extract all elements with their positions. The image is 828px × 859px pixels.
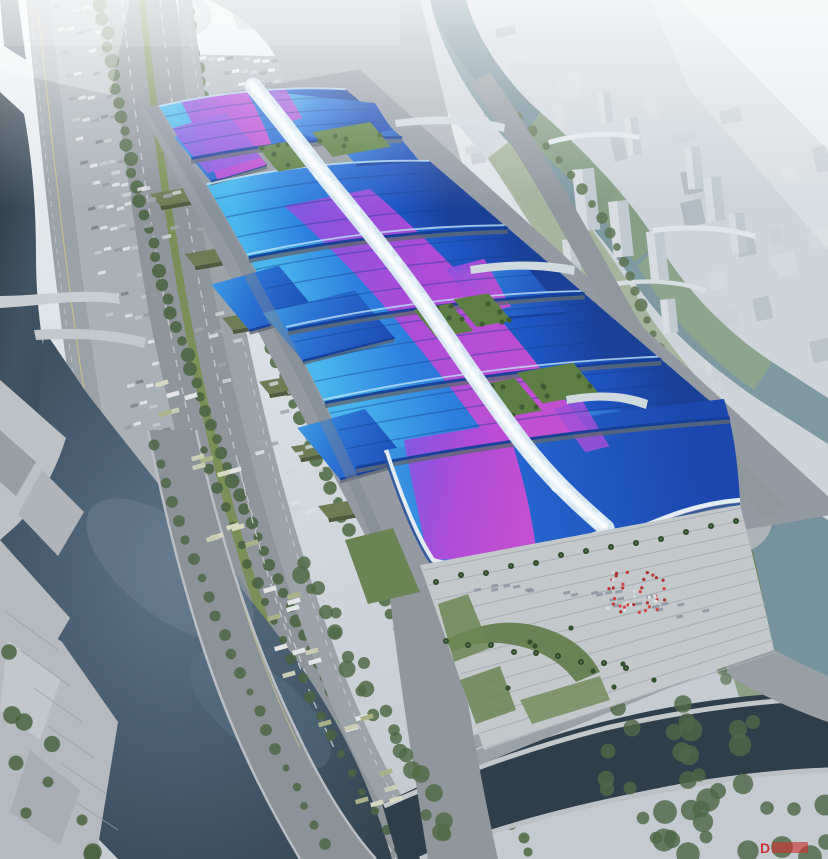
svg-text:D: D [760,840,770,856]
